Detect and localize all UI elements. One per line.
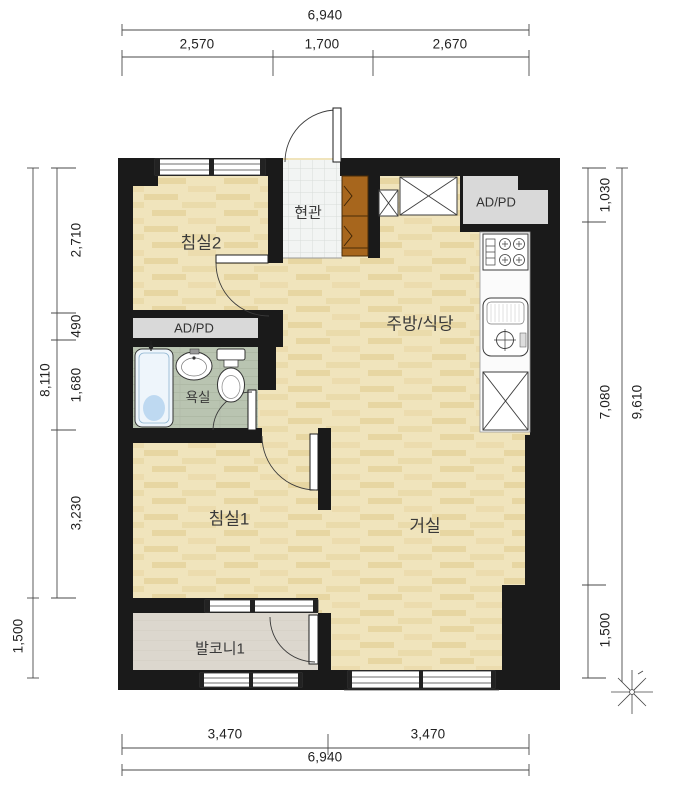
dim-left-seg4: 3,230 — [69, 496, 84, 531]
dim-left-seg2: 490 — [69, 314, 84, 337]
dim-top-seg1: 2,570 — [180, 37, 215, 52]
dim-bottom-seg2: 3,470 — [411, 727, 446, 742]
kitchen-sink-icon — [483, 298, 528, 356]
refrigerator-box — [483, 372, 528, 430]
room-label-kitchen-dining: 주방/식당 — [386, 310, 453, 335]
dim-top-seg3: 2,670 — [433, 37, 468, 52]
bedroom2-window — [155, 159, 265, 175]
north-star-icon — [611, 670, 653, 714]
dim-top-seg2: 1,700 — [305, 37, 340, 52]
dim-bottom-seg1: 3,470 — [208, 727, 243, 742]
room-label-bedroom2: 침실2 — [181, 229, 222, 254]
room-label-adpd-top: AD/PD — [476, 195, 516, 210]
dim-right-seg1: 1,030 — [598, 178, 613, 213]
room-label-adpd-left: AD/PD — [174, 321, 214, 336]
balcony-window — [200, 673, 302, 687]
dim-left-seg1: 2,710 — [69, 223, 84, 258]
bedroom1-balcony-window — [205, 600, 318, 612]
stove-icon — [483, 234, 528, 270]
toilet-icon — [217, 349, 245, 402]
dim-left-balcony: 1,500 — [11, 619, 26, 654]
bathtub-icon — [135, 341, 173, 427]
room-label-living: 거실 — [409, 512, 440, 537]
dim-right-seg3: 1,500 — [598, 613, 613, 648]
dim-bottom-total: 6,940 — [308, 750, 343, 765]
room-label-entrance: 현관 — [294, 202, 322, 223]
living-window — [344, 671, 499, 690]
floor-plan-drawing — [0, 0, 679, 791]
room-label-balcony1: 발코니1 — [195, 638, 245, 659]
room-label-bathroom: 욕실 — [186, 386, 211, 406]
shoe-cabinet — [342, 176, 368, 256]
dim-left-total: 8,110 — [38, 363, 53, 397]
entrance-door — [285, 108, 341, 162]
wardrobe-box-large — [400, 177, 457, 215]
dim-right-total: 9,610 — [630, 385, 645, 420]
room-label-bedroom1: 침실1 — [209, 505, 250, 530]
floor-plan-canvas: 침실2 현관 주방/식당 AD/PD AD/PD 욕실 침실1 거실 발코니1 … — [0, 0, 679, 791]
wardrobe-box-small — [379, 190, 398, 216]
dim-top-total: 6,940 — [308, 8, 343, 23]
dim-right-seg2: 7,080 — [598, 385, 613, 420]
dim-left-seg3: 1,680 — [69, 368, 84, 403]
